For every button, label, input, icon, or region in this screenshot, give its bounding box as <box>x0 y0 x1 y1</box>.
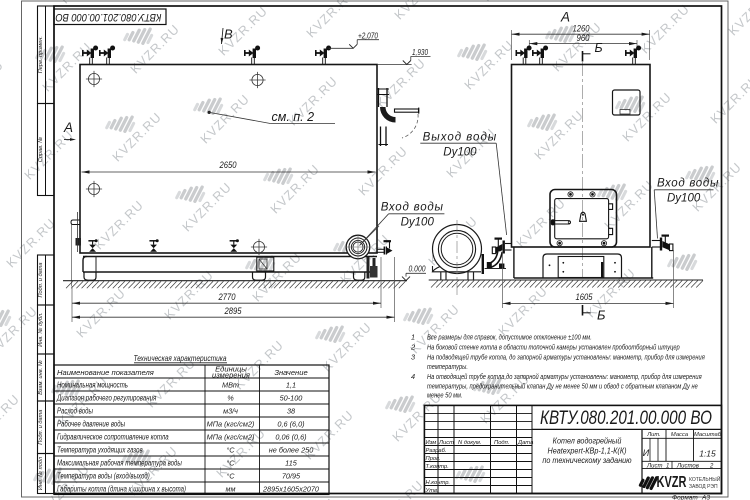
svg-text:1,930: 1,930 <box>412 48 428 57</box>
svg-text:Инв. № подл: Инв. № подл <box>38 456 44 490</box>
svg-text:Dy100: Dy100 <box>443 147 477 159</box>
svg-text:1: 1 <box>666 463 669 469</box>
svg-text:А: А <box>63 120 73 135</box>
svg-text:0.000: 0.000 <box>409 264 427 273</box>
svg-text:Heatexpert-КВр-1,1-К(К): Heatexpert-КВр-1,1-К(К) <box>548 446 627 456</box>
svg-text:Лит.: Лит. <box>646 432 661 438</box>
svg-text:Гидравлическое сопротивление к: Гидравлическое сопротивление котла <box>57 433 169 442</box>
svg-text:38: 38 <box>287 407 296 416</box>
svg-text:2895х1605х2070: 2895х1605х2070 <box>262 485 319 494</box>
svg-text:м3/ч: м3/ч <box>223 407 238 416</box>
svg-text:На отводящей трубе котла,до за: На отводящей трубе котла,до запорной арм… <box>427 372 702 381</box>
svg-text:Перв. примен.: Перв. примен. <box>38 36 44 73</box>
svg-text:И: И <box>643 448 650 458</box>
svg-text:Формат: Формат <box>672 495 698 500</box>
svg-text:КОТЕЛЬНЫЙ: КОТЕЛЬНЫЙ <box>689 475 721 483</box>
svg-text:не более 250: не более 250 <box>269 446 314 455</box>
svg-text:Котел водогрейный: Котел водогрейный <box>553 436 622 446</box>
svg-text:1:15: 1:15 <box>699 449 716 459</box>
svg-text:0,06 (0,6): 0,06 (0,6) <box>275 433 306 442</box>
svg-text:Расход воды: Расход воды <box>57 407 93 416</box>
svg-text:1605: 1605 <box>576 292 593 302</box>
svg-text:менее 50 мм.: менее 50 мм. <box>427 392 463 400</box>
svg-text:Листов: Листов <box>676 463 699 469</box>
svg-text:Наименование показателя: Наименование показателя <box>57 368 154 377</box>
svg-text:Утв.: Утв. <box>425 488 439 494</box>
svg-text:2895: 2895 <box>224 306 242 316</box>
svg-text:KVZR: KVZR <box>657 474 687 491</box>
svg-text:Диапазон рабочего регулировани: Диапазон рабочего регулирования <box>56 394 156 403</box>
svg-text:Значение: Значение <box>274 368 307 377</box>
svg-text:На подводящей трубе котла, д: На подводящей трубе котла, до запорной а… <box>427 353 705 362</box>
svg-text:1: 1 <box>411 333 415 342</box>
svg-text:Взам. инв. №: Взам. инв. № <box>38 360 44 395</box>
svg-text:70/95: 70/95 <box>282 472 301 481</box>
svg-text:Подп. и дата: Подп. и дата <box>38 410 44 445</box>
svg-text:Масштаб: Масштаб <box>694 432 722 438</box>
svg-text:Dy100: Dy100 <box>401 217 435 229</box>
svg-text:Дата: Дата <box>517 440 534 446</box>
svg-text:см. п. 2: см. п. 2 <box>272 110 315 124</box>
svg-text:по техническому заданию: по техническому заданию <box>542 455 631 465</box>
svg-text:Н.контр.: Н.контр. <box>426 480 451 486</box>
svg-text:Б: Б <box>595 41 603 55</box>
svg-text:2770: 2770 <box>218 292 236 302</box>
svg-text:Dy100: Dy100 <box>667 193 701 205</box>
svg-text:2650: 2650 <box>219 160 237 170</box>
svg-text:В: В <box>224 27 233 42</box>
svg-text:А: А <box>560 10 570 25</box>
svg-text:2: 2 <box>410 343 415 352</box>
svg-text:°С: °С <box>226 472 235 481</box>
svg-text:°С: °С <box>226 446 235 455</box>
svg-text:измерения: измерения <box>212 370 250 379</box>
svg-text:Максимальная рабочая температу: Максимальная рабочая температура воды <box>57 459 182 468</box>
svg-text:МПа (кгс/см2): МПа (кгс/см2) <box>207 433 255 442</box>
svg-text:Б: Б <box>597 308 606 323</box>
svg-text:Все размеры для справок, допус: Все размеры для справок, допустимое откл… <box>427 333 592 342</box>
svg-text:МПа (кгс/см2): МПа (кгс/см2) <box>207 420 255 429</box>
svg-text:КВТУ.080.201.00.000 ВО: КВТУ.080.201.00.000 ВО <box>55 11 161 23</box>
svg-text:4: 4 <box>411 372 415 381</box>
svg-text:Лист: Лист <box>438 440 454 446</box>
svg-text:3: 3 <box>411 353 415 362</box>
svg-text:Т.контр.: Т.контр. <box>426 464 449 470</box>
svg-text:температуры.: температуры. <box>427 363 468 371</box>
svg-text:Техническая характеристика: Техническая характеристика <box>134 354 227 363</box>
svg-text:50-100: 50-100 <box>280 394 303 403</box>
svg-text:Лист: Лист <box>646 463 662 469</box>
svg-text:температуры, предохранительный: температуры, предохранительный клапан Ду… <box>427 382 698 391</box>
svg-text:Масса: Масса <box>671 432 689 438</box>
svg-text:Габариты котла (длина х ширина: Габариты котла (длина х ширина х высота) <box>57 485 186 494</box>
svg-text:Вход воды: Вход воды <box>381 202 444 214</box>
svg-text:А3: А3 <box>701 495 710 500</box>
svg-text:Разраб.: Разраб. <box>426 448 447 454</box>
svg-text:+2,070: +2,070 <box>358 31 378 40</box>
svg-text:N докум.: N докум. <box>458 440 481 446</box>
svg-text:На боковой стенке котла в обла: На боковой стенке котла в области топочн… <box>427 343 680 352</box>
svg-text:Температура воды (вход/выход): Температура воды (вход/выход) <box>57 472 150 481</box>
svg-text:МВт: МВт <box>222 381 239 390</box>
svg-text:960: 960 <box>577 33 590 43</box>
svg-text:Пров.: Пров. <box>426 456 441 462</box>
svg-text:Температура уходящих газов: Температура уходящих газов <box>57 446 143 455</box>
svg-text:Рабочее давление воды: Рабочее давление воды <box>57 420 125 429</box>
svg-text:115: 115 <box>285 459 298 468</box>
svg-text:Номинальная мощность: Номинальная мощность <box>57 382 128 390</box>
svg-text:КВТУ.080.201.00.000 ВО: КВТУ.080.201.00.000 ВО <box>540 407 712 429</box>
svg-text:2: 2 <box>709 463 714 469</box>
svg-text:Изм: Изм <box>426 440 437 446</box>
svg-text:Подп.: Подп. <box>494 440 509 446</box>
svg-text:%: % <box>227 394 234 403</box>
svg-text:Вход воды: Вход воды <box>657 177 719 189</box>
svg-text:°С: °С <box>226 459 235 468</box>
svg-text:ЗАВОД РЭП: ЗАВОД РЭП <box>689 484 718 490</box>
svg-text:Инв. № дубл.: Инв. № дубл. <box>38 312 44 346</box>
svg-text:мм: мм <box>225 485 235 494</box>
svg-text:Подп. и дата: Подп. и дата <box>38 262 44 297</box>
svg-text:Справ. №: Справ. № <box>38 137 44 162</box>
svg-text:Выход воды: Выход воды <box>423 132 498 144</box>
svg-text:0,6 (6,0): 0,6 (6,0) <box>277 420 304 429</box>
svg-text:1,1: 1,1 <box>286 381 296 390</box>
